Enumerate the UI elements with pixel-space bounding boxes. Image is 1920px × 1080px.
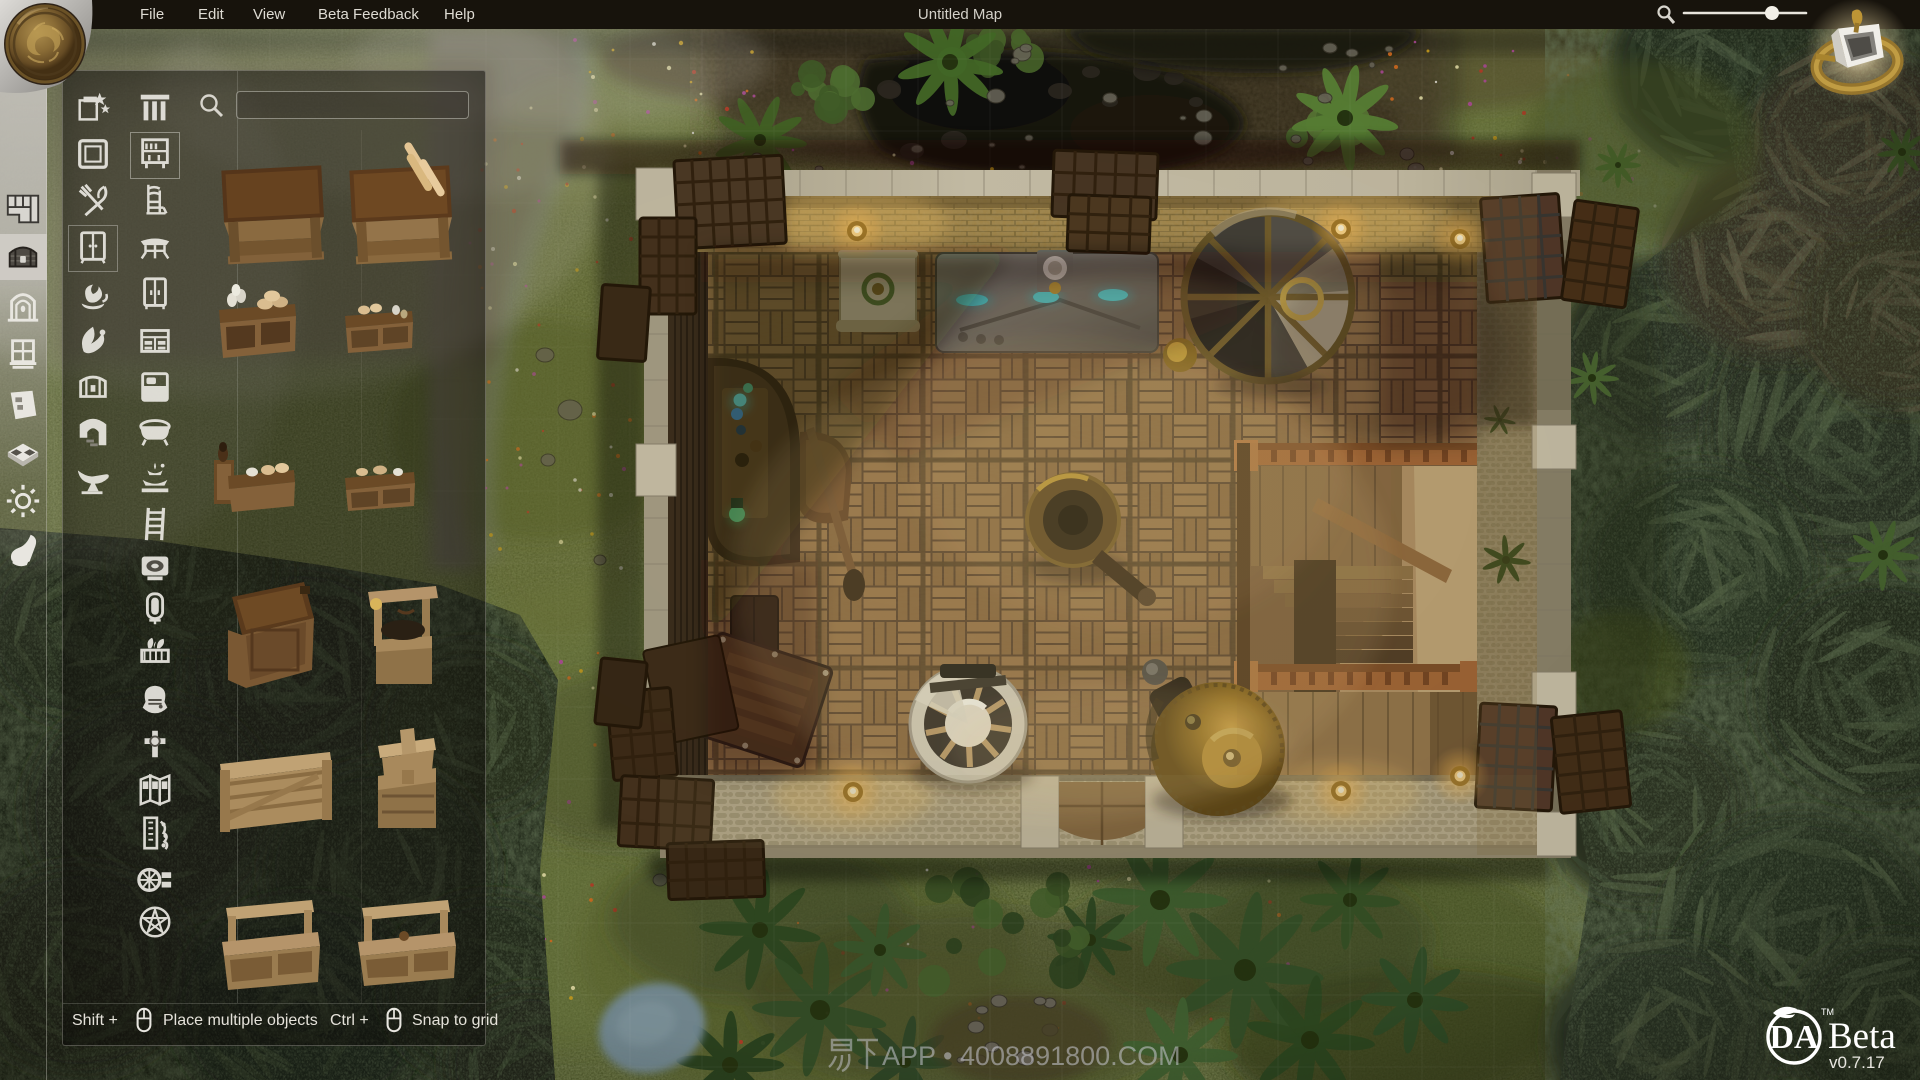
svg-text:v0.7.17: v0.7.17 bbox=[1829, 1053, 1885, 1072]
svg-text:DA: DA bbox=[1769, 1019, 1819, 1056]
svg-text:APP • 4008891800.COM: APP • 4008891800.COM bbox=[882, 1041, 1181, 1071]
svg-text:Beta: Beta bbox=[1828, 1016, 1896, 1057]
